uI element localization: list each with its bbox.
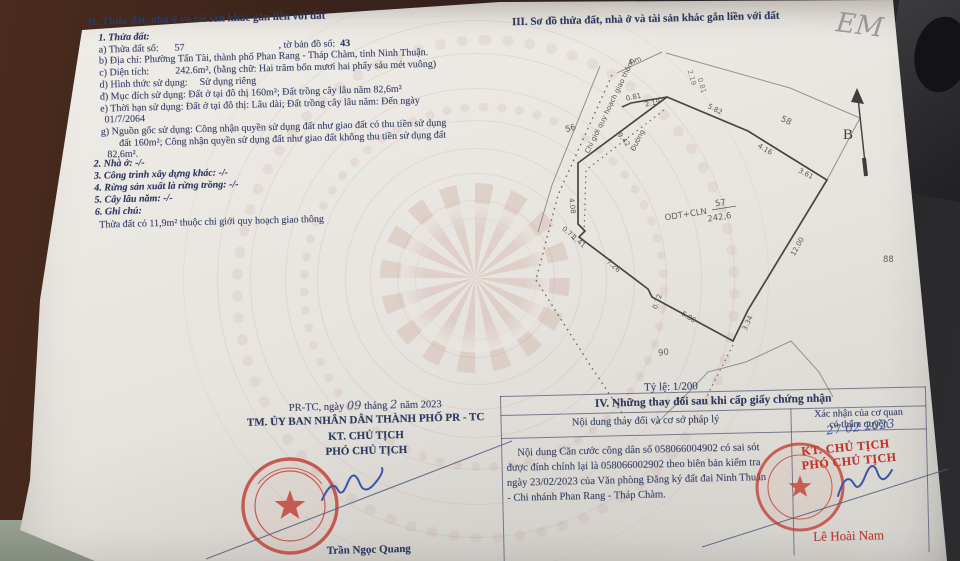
pencil-mark: EM <box>834 7 885 44</box>
handwritten-month: 2 <box>390 397 398 411</box>
date-year: năm 2023 <box>400 399 442 411</box>
use-form-value: Sử dụng riêng <box>199 76 256 88</box>
line-use-term-date: 01/7/2064 <box>104 113 145 125</box>
change-body-line4: - Chi nhánh Phan Rang - Tháp Chàm. <box>507 489 666 504</box>
change-body-line1: Nội dung Căn cước công dân số 0580660049… <box>517 442 759 458</box>
item-6-notes: 6. Ghi chú: <box>95 206 142 218</box>
item-1-parcel: 1. Thửa đất: <box>98 31 150 43</box>
item-5-perennial: 5. Cây lâu năm: -/- <box>94 193 172 206</box>
change-body-line2: được đính chính lại là 058066002902 theo… <box>507 457 761 474</box>
watermark-ring <box>415 218 537 340</box>
date-mid: tháng <box>364 400 388 412</box>
item-2-house: 2. Nhà ở: -/- <box>94 157 145 169</box>
date-prefix: PR-TC, ngày <box>289 401 345 413</box>
table-object-hole <box>908 12 960 96</box>
approver-name: Lê Hoài Nam <box>813 527 884 545</box>
area-label: c) Diện tích: <box>99 66 149 78</box>
section-4-changes-table: IV. Những thay đổi sau khi cấp giấy chứn… <box>500 386 930 561</box>
column-1-header: Nội dung thay đổi và cơ sở pháp lý <box>501 412 791 430</box>
area-value: 242.6m² <box>175 65 209 77</box>
map-sheet-value: 43 <box>340 38 350 49</box>
change-body-line3: ngày 23/02/2023 của Văn phòng Đăng ký đấ… <box>507 472 766 489</box>
use-form-label: d) Hình thức sử dụng: <box>99 77 187 90</box>
photo-of-land-certificate: B 4 m 0.81 2.19 2.19 0.81 5.82 4.16 3.61… <box>0 0 960 561</box>
section-2-parcel-info: II. Thửa đất, nhà ở và tài sản khác gắn … <box>83 0 509 245</box>
parcel-number-value: 57 <box>174 42 184 53</box>
section-2-title: II. Thửa đất, nhà ở và tài sản khác gắn … <box>88 11 326 28</box>
handwritten-day: 09 <box>347 398 362 412</box>
item-4-forest: 4. Rừng sản xuất là rừng trồng: -/- <box>94 179 238 194</box>
